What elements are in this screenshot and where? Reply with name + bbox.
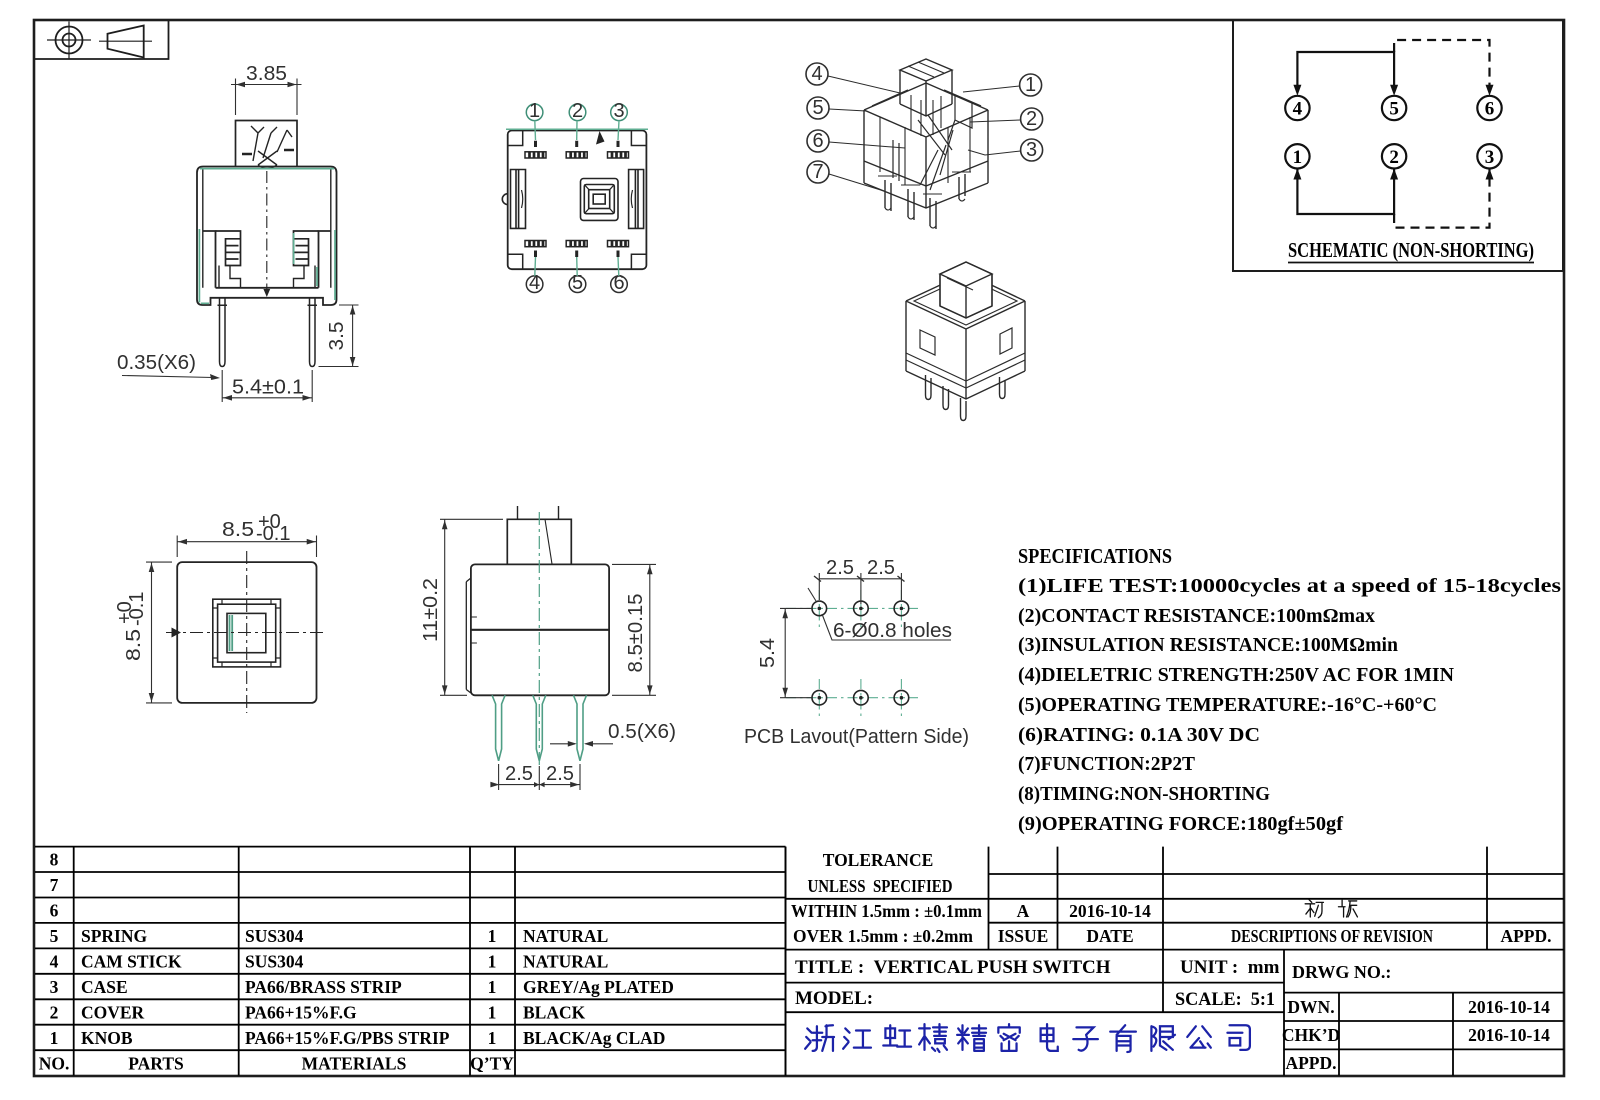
- svg-text:-0.1: -0.1: [256, 523, 290, 545]
- svg-text:(8)TIMING:NON-SHORTING: (8)TIMING:NON-SHORTING: [1018, 783, 1270, 805]
- svg-text:-0.1: -0.1: [126, 592, 148, 626]
- svg-text:SCHEMATIC (NON-SHORTING): SCHEMATIC (NON-SHORTING): [1288, 238, 1534, 262]
- svg-text:APPD.: APPD.: [1285, 1053, 1336, 1073]
- svg-text:ISSUE: ISSUE: [998, 926, 1049, 946]
- svg-text:11±0.2: 11±0.2: [420, 578, 442, 642]
- svg-text:GREY/Ag PLATED: GREY/Ag PLATED: [523, 977, 674, 997]
- svg-text:7: 7: [50, 875, 59, 895]
- svg-text:DRWG NO.:: DRWG NO.:: [1292, 962, 1391, 982]
- svg-text:4: 4: [50, 952, 59, 972]
- svg-text:8.5: 8.5: [222, 519, 254, 541]
- svg-text:3: 3: [50, 977, 59, 997]
- svg-text:5: 5: [1389, 99, 1399, 120]
- svg-text:(1)LIFE TEST:10000cycles at a: (1)LIFE TEST:10000cycles at a speed of 1…: [1018, 575, 1561, 597]
- svg-text:NO.: NO.: [39, 1054, 70, 1074]
- svg-text:(5)OPERATING TEMPERATURE:-16°C: (5)OPERATING TEMPERATURE:-16°C-+60°C: [1018, 694, 1437, 716]
- svg-text:PARTS: PARTS: [128, 1054, 183, 1074]
- svg-text:MODEL:: MODEL:: [795, 988, 873, 1009]
- svg-text:SCALE: 5:1: SCALE: 5:1: [1175, 989, 1275, 1010]
- svg-text:1: 1: [50, 1028, 59, 1048]
- svg-text:PA66/BRASS STRIP: PA66/BRASS STRIP: [245, 977, 402, 997]
- svg-text:1: 1: [1025, 74, 1036, 96]
- svg-text:5: 5: [50, 926, 59, 946]
- svg-text:NATURAL: NATURAL: [523, 926, 608, 946]
- svg-text:2: 2: [1389, 147, 1399, 168]
- svg-text:PA66+15%F.G/PBS STRIP: PA66+15%F.G/PBS STRIP: [245, 1028, 450, 1048]
- svg-text:UNLESS SPECIFIED: UNLESS SPECIFIED: [808, 876, 953, 896]
- svg-text:6: 6: [50, 901, 59, 921]
- svg-text:COVER: COVER: [81, 1003, 145, 1023]
- svg-text:1: 1: [488, 1028, 497, 1048]
- svg-text:4: 4: [1293, 99, 1303, 120]
- svg-text:2: 2: [1026, 108, 1037, 130]
- svg-text:2.5: 2.5: [826, 557, 854, 579]
- svg-text:6: 6: [1485, 99, 1495, 120]
- svg-text:BLACK: BLACK: [523, 1003, 586, 1023]
- svg-text:KNOB: KNOB: [81, 1028, 133, 1048]
- svg-text:Q’TY: Q’TY: [470, 1054, 514, 1074]
- svg-text:(3)INSULATION RESISTANCE:100MΩ: (3)INSULATION RESISTANCE:100MΩmin: [1018, 634, 1398, 656]
- svg-text:1: 1: [488, 977, 497, 997]
- svg-text:DATE: DATE: [1086, 926, 1133, 946]
- svg-text:1: 1: [529, 100, 540, 122]
- svg-text:UNIT : mm: UNIT : mm: [1180, 957, 1280, 978]
- svg-text:8.5: 8.5: [123, 629, 145, 661]
- svg-text:0.5(X6): 0.5(X6): [608, 721, 676, 743]
- svg-text:(4)DIELETRIC STRENGTH:250V AC: (4)DIELETRIC STRENGTH:250V AC FOR 1MIN: [1018, 664, 1455, 686]
- svg-text:3.5: 3.5: [326, 322, 348, 351]
- svg-text:1: 1: [1293, 147, 1303, 168]
- svg-text:2016-10-14: 2016-10-14: [1468, 1025, 1550, 1045]
- svg-text:MATERIALS: MATERIALS: [302, 1054, 407, 1074]
- svg-text:5.4±0.1: 5.4±0.1: [232, 377, 304, 399]
- svg-text:2.5: 2.5: [546, 763, 574, 785]
- svg-text:0.35(X6): 0.35(X6): [117, 352, 196, 374]
- svg-text:SPRING: SPRING: [81, 926, 148, 946]
- svg-text:OVER 1.5mm : ±0.2mm: OVER 1.5mm : ±0.2mm: [793, 926, 973, 946]
- svg-text:SPECIFICATIONS: SPECIFICATIONS: [1018, 544, 1172, 568]
- svg-text:3: 3: [1026, 139, 1037, 161]
- svg-text:PCB Lavout(Pattern Side): PCB Lavout(Pattern Side): [744, 726, 969, 748]
- svg-text:2.5: 2.5: [867, 557, 895, 579]
- svg-text:1: 1: [488, 952, 497, 972]
- svg-text:CASE: CASE: [81, 977, 128, 997]
- svg-text:2: 2: [50, 1003, 59, 1023]
- svg-text:5.4: 5.4: [757, 638, 779, 668]
- svg-text:8: 8: [50, 850, 59, 870]
- svg-text:1: 1: [488, 926, 497, 946]
- svg-text:(9)OPERATING FORCE:180gf±50gf: (9)OPERATING FORCE:180gf±50gf: [1018, 813, 1343, 835]
- svg-text:8.5±0.15: 8.5±0.15: [625, 594, 647, 673]
- svg-text:3: 3: [613, 100, 624, 122]
- svg-text:PA66+15%F.G: PA66+15%F.G: [245, 1003, 357, 1023]
- svg-text:DWN.: DWN.: [1287, 997, 1334, 1017]
- svg-text:APPD.: APPD.: [1500, 926, 1551, 946]
- svg-text:TITLE : VERTICAL PUSH SWITCH: TITLE : VERTICAL PUSH SWITCH: [795, 957, 1111, 978]
- svg-text:3.85: 3.85: [246, 63, 287, 85]
- svg-text:CAM STICK: CAM STICK: [81, 952, 182, 972]
- svg-text:2: 2: [572, 100, 583, 122]
- svg-text:NATURAL: NATURAL: [523, 952, 608, 972]
- svg-text:WITHIN 1.5mm : ±0.1mm: WITHIN 1.5mm : ±0.1mm: [791, 901, 982, 921]
- svg-text:TOLERANCE: TOLERANCE: [823, 850, 934, 870]
- svg-text:DESCRIPTIONS OF REVISION: DESCRIPTIONS OF REVISION: [1231, 926, 1433, 946]
- svg-text:(6)RATING: 0.1A 30V DC: (6)RATING: 0.1A 30V DC: [1018, 724, 1260, 746]
- svg-text:A: A: [1017, 901, 1030, 921]
- svg-text:4: 4: [811, 63, 822, 85]
- svg-text:2016-10-14: 2016-10-14: [1069, 901, 1151, 921]
- svg-text:SUS304: SUS304: [245, 926, 304, 946]
- svg-text:CHK’D: CHK’D: [1282, 1025, 1340, 1045]
- svg-text:SUS304: SUS304: [245, 952, 304, 972]
- svg-text:6: 6: [812, 130, 823, 152]
- svg-text:(2)CONTACT RESISTANCE:100mΩmax: (2)CONTACT RESISTANCE:100mΩmax: [1018, 605, 1375, 627]
- svg-text:2016-10-14: 2016-10-14: [1468, 997, 1550, 1017]
- svg-text:2.5: 2.5: [505, 763, 533, 785]
- svg-text:5: 5: [812, 97, 823, 119]
- svg-text:BLACK/Ag CLAD: BLACK/Ag CLAD: [523, 1028, 665, 1048]
- svg-text:3: 3: [1485, 147, 1495, 168]
- svg-text:(7)FUNCTION:2P2T: (7)FUNCTION:2P2T: [1018, 753, 1196, 775]
- svg-text:1: 1: [488, 1003, 497, 1023]
- svg-text:7: 7: [812, 161, 823, 183]
- svg-text:6-Ø0.8 holes: 6-Ø0.8 holes: [833, 620, 952, 642]
